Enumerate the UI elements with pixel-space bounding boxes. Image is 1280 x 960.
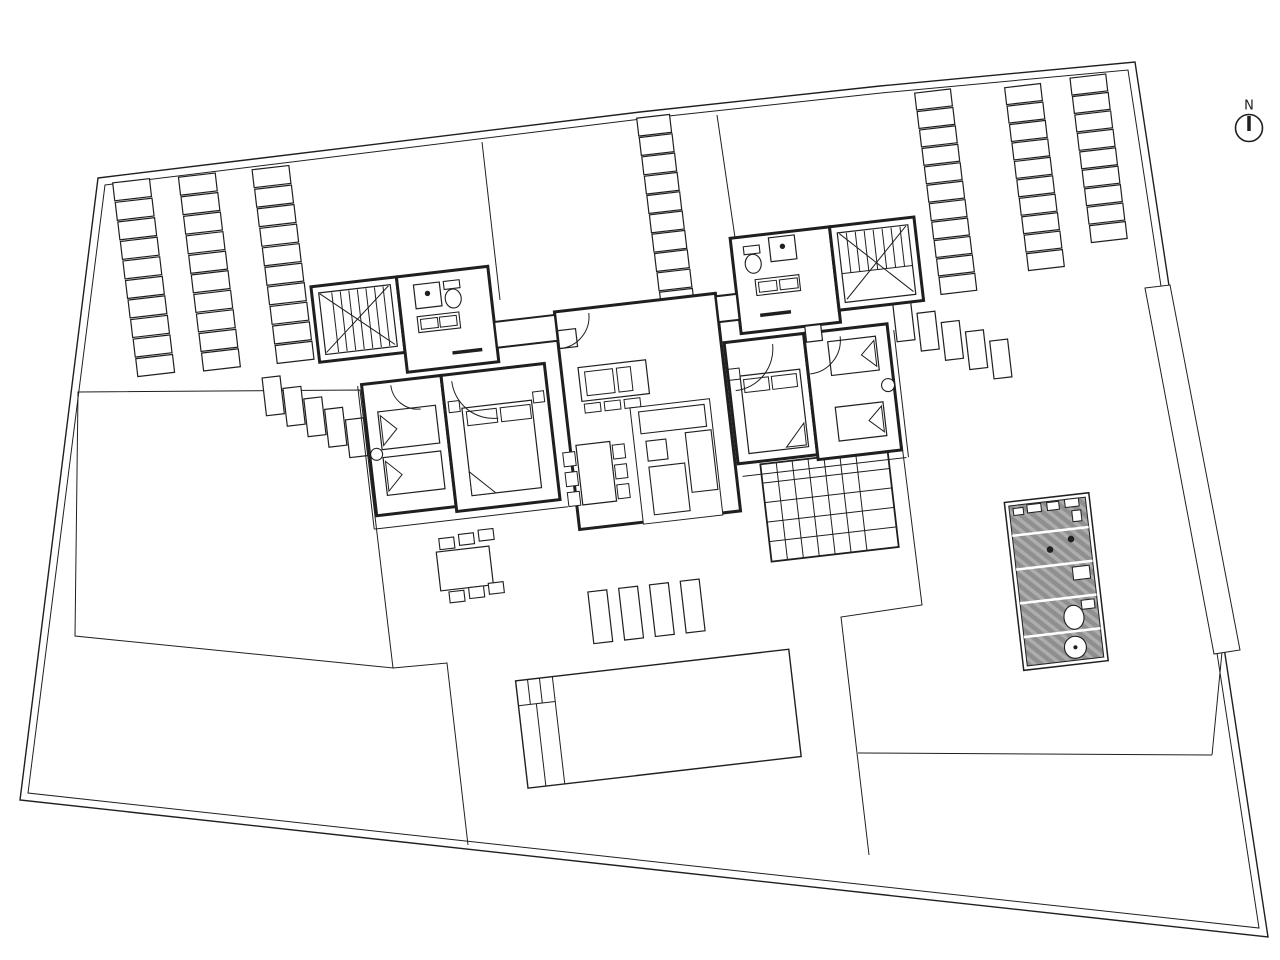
garden-steps-col-e — [1027, 250, 1065, 271]
hall-link-west — [494, 315, 558, 348]
garden-steps-col-f — [1087, 203, 1125, 224]
garden-steps-col-b — [181, 193, 220, 215]
garden-steps-col-b — [196, 310, 235, 332]
garden-steps-col-c — [262, 244, 301, 266]
garden-steps-col-d — [927, 181, 965, 202]
garden-steps-col-mid — [654, 250, 689, 272]
sink-right-basin-1 — [758, 280, 777, 292]
floor-plan-svg: N — [0, 0, 1280, 960]
utility-box — [1072, 565, 1090, 580]
garden-steps-col-c — [260, 224, 299, 246]
garden-steps-col-f — [1080, 148, 1118, 169]
ottoman — [649, 463, 690, 515]
garden-steps-col-e — [1005, 84, 1043, 105]
garden-steps-col-e — [1010, 120, 1048, 141]
outdoor-chairs-top — [439, 537, 455, 550]
garden-steps-col-b — [186, 232, 225, 254]
utility-dot-1 — [1047, 546, 1053, 552]
utility-shower-drain — [1074, 646, 1078, 650]
kitchen-island-top-1 — [585, 369, 616, 396]
garden-steps-col-f — [1070, 74, 1108, 95]
bed3-pillow-2 — [771, 374, 797, 390]
garden-steps-col-d — [929, 200, 967, 221]
garden-steps-row-g — [941, 320, 963, 360]
dining-chairs-right — [617, 484, 631, 499]
garden-steps-col-f — [1072, 92, 1110, 113]
garden-steps-col-e — [1012, 139, 1050, 160]
garden-steps-col-a — [128, 296, 167, 318]
garden-steps-row-c2 — [262, 376, 284, 416]
garden-steps-col-a — [136, 354, 175, 376]
garden-steps-col-c — [273, 322, 312, 344]
dining-chairs-right — [614, 464, 628, 479]
utility-counter-4 — [1064, 498, 1079, 508]
closet-east — [805, 324, 823, 342]
garden-steps-col-f — [1082, 166, 1120, 187]
outdoor-table — [436, 546, 493, 591]
outdoor-chairs-bottom — [449, 590, 465, 603]
utility-toilet-tank — [1081, 599, 1095, 609]
toilet-right-tank — [743, 245, 760, 255]
garden-steps-col-d — [934, 236, 972, 257]
utility-counter-2 — [1027, 503, 1042, 513]
bed2-pillow-2 — [500, 404, 531, 421]
utility-counter-1 — [1013, 507, 1024, 515]
bed3-pillow-1 — [743, 377, 769, 393]
utility-dot-2 — [1068, 536, 1074, 542]
kitchen-island-top-2 — [616, 367, 633, 392]
garden-steps-col-mid — [647, 192, 682, 214]
utility-counter-5 — [1072, 510, 1082, 522]
garden-steps-col-d — [924, 163, 962, 184]
sink-left-basin-1 — [420, 317, 438, 329]
garden-steps-col-b — [189, 251, 228, 273]
garden-steps-col-e — [1024, 231, 1062, 252]
bed2-nightstand-1 — [448, 401, 460, 413]
garden-steps-col-d — [932, 218, 970, 239]
garden-steps-col-b — [184, 212, 223, 234]
garden-steps-col-e — [1017, 176, 1055, 197]
shower-right-drain — [780, 244, 785, 249]
outdoor-chairs-bottom — [469, 586, 485, 599]
dining-chairs-right — [612, 444, 626, 459]
utility-counter-3 — [1047, 501, 1060, 510]
closet-west — [558, 329, 578, 349]
garden-steps-row-g — [965, 330, 987, 370]
garden-steps-col-e — [1014, 157, 1052, 178]
garden-steps-col-a — [131, 315, 170, 337]
garden-steps-col-c — [275, 341, 314, 363]
garden-steps-row-g — [990, 339, 1012, 379]
dining-chairs-left — [565, 471, 579, 486]
outdoor-chairs-top — [478, 528, 494, 541]
garden-steps-col-mid — [644, 172, 679, 194]
garden-steps-col-e — [1019, 194, 1057, 215]
dining-table — [576, 441, 617, 505]
outdoor-chairs-top — [458, 533, 474, 546]
garden-steps-row-c2 — [283, 386, 305, 426]
dining-chairs-left — [563, 452, 577, 467]
garden-steps-col-c — [255, 185, 294, 207]
kitchen-stools — [604, 400, 621, 411]
garden-steps-col-e — [1022, 213, 1060, 234]
garden-steps-col-d — [917, 107, 955, 128]
garden-steps-col-b — [202, 349, 241, 371]
garden-steps-col-mid — [637, 114, 672, 136]
garden-steps-col-d — [915, 89, 953, 110]
garden-steps-row-g — [917, 311, 939, 351]
garden-steps-col-c — [265, 263, 304, 285]
garden-steps-col-d — [937, 255, 975, 276]
garden-steps-row-c2 — [345, 418, 367, 458]
garden-steps-col-a — [125, 276, 164, 298]
garden-steps-col-f — [1077, 129, 1115, 150]
garden-steps-col-a — [120, 237, 159, 259]
bed3-nightstand — [728, 368, 740, 380]
north-label: N — [1244, 99, 1254, 114]
garden-steps-col-a — [133, 335, 172, 357]
garden-steps-col-b — [199, 329, 238, 351]
garden-steps-col-b — [191, 271, 230, 293]
hall-link-east — [716, 294, 740, 322]
garden-steps-col-mid — [652, 230, 687, 252]
garden-steps-col-c — [252, 166, 291, 188]
sink-right-basin-2 — [779, 278, 798, 290]
garden-steps-col-c — [267, 283, 306, 305]
garden-steps-col-mid — [642, 153, 677, 175]
garden-steps-row-g — [893, 302, 915, 342]
kitchen-stools — [584, 402, 601, 413]
garden-steps-col-a — [118, 218, 157, 240]
garden-steps-col-d — [939, 273, 977, 294]
garden-steps-col-mid — [639, 134, 674, 156]
coffee-table — [646, 439, 668, 461]
dining-chairs-left — [567, 491, 581, 506]
garden-steps-row-c2 — [325, 407, 347, 447]
garden-steps-col-a — [123, 257, 162, 279]
bed2-nightstand-2 — [533, 391, 545, 403]
garden-steps-col-b — [194, 290, 233, 312]
garden-steps-col-d — [922, 144, 960, 165]
garden-steps-col-c — [257, 205, 296, 227]
toilet-left-tank — [443, 280, 460, 290]
garden-steps-col-a — [113, 179, 152, 201]
garden-steps-col-c — [270, 302, 309, 324]
garden-steps-row-c2 — [304, 397, 326, 437]
garden-steps-col-mid — [649, 211, 684, 233]
garden-steps-col-d — [920, 126, 958, 147]
garden-steps-col-f — [1089, 222, 1127, 243]
sink-left-basin-2 — [439, 315, 457, 327]
outdoor-chairs-bottom — [488, 582, 504, 595]
garden-steps-col-b — [178, 173, 217, 195]
drawing-area: N — [0, 0, 1280, 960]
garden-steps-col-e — [1007, 102, 1045, 123]
garden-steps-col-f — [1075, 111, 1113, 132]
garden-steps-col-a — [115, 198, 154, 220]
garden-steps-col-f — [1085, 185, 1123, 206]
shower-left-drain — [425, 291, 430, 296]
garden-steps-col-mid — [657, 269, 692, 291]
